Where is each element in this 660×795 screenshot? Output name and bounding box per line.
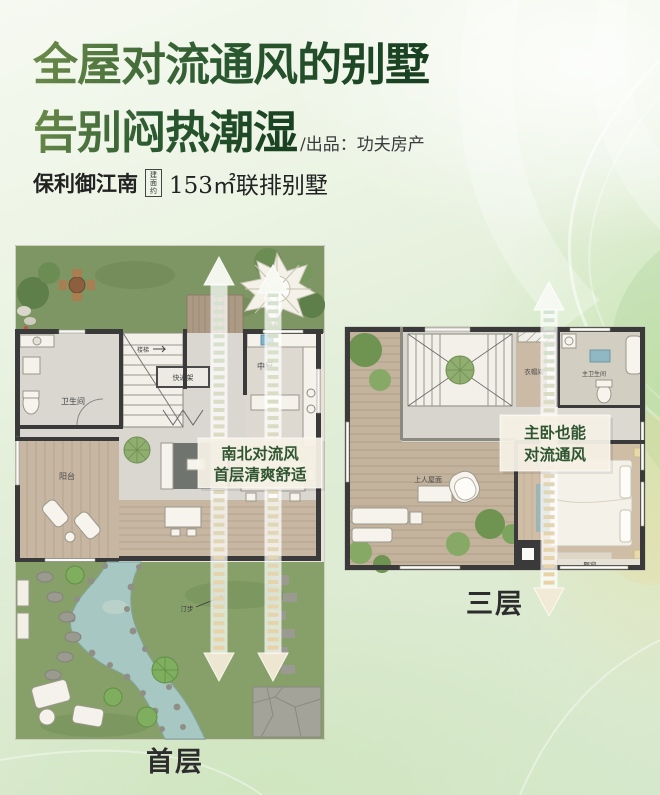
project-row: 保利御江南 建面约 153㎡联排别墅 — [33, 166, 328, 200]
area-badge: 建面约 — [145, 169, 162, 197]
label-stepping-stones: 汀步 — [181, 605, 195, 613]
room-label-terrace: 上人屋面 — [414, 475, 442, 484]
callout-line1: 南北对流风 — [221, 444, 299, 463]
first-floor-plan: 卫生间 楼梯 快递架 — [15, 245, 325, 740]
planter — [17, 613, 29, 639]
poster-page: 全屋对流通风的别墅 告别闷热潮湿 /出品：功夫房产 保利御江南 建面约 153㎡… — [0, 0, 660, 795]
master-bathroom: 主卫生间 — [558, 330, 644, 407]
room-label-bathroom: 卫生间 — [61, 396, 85, 406]
byline: /出品：功夫房产 — [300, 130, 425, 155]
planter — [17, 580, 29, 606]
room-label-stairs: 楼梯 — [137, 346, 149, 354]
callout-line2: 首层清爽舒适 — [213, 465, 307, 484]
balcony: 阳台 — [18, 441, 119, 558]
third-floor-caption: 三层 — [450, 582, 540, 621]
first-floor-caption: 首层 — [130, 740, 220, 779]
area-spec: 153㎡联排别墅 — [169, 166, 328, 200]
main-title-line1: 全屋对流通风的别墅 — [33, 28, 429, 93]
first-floor-callout: 南北对流风 首层清爽舒适 — [198, 438, 325, 491]
main-title-line2: 告别闷热潮湿 — [33, 96, 297, 161]
callout-line2: 对流通风 — [524, 445, 587, 464]
room-label-balcony: 阳台 — [59, 471, 75, 481]
project-name: 保利御江南 — [33, 168, 138, 198]
third-floor-plan: 上人屋面 衣帽间 主卫生间 — [340, 272, 660, 624]
room-label-master-bath: 主卫生间 — [582, 370, 606, 378]
callout-line1: 主卧也能 — [524, 423, 587, 442]
third-floor-callout: 主卧也能 对流通风 — [500, 415, 613, 474]
